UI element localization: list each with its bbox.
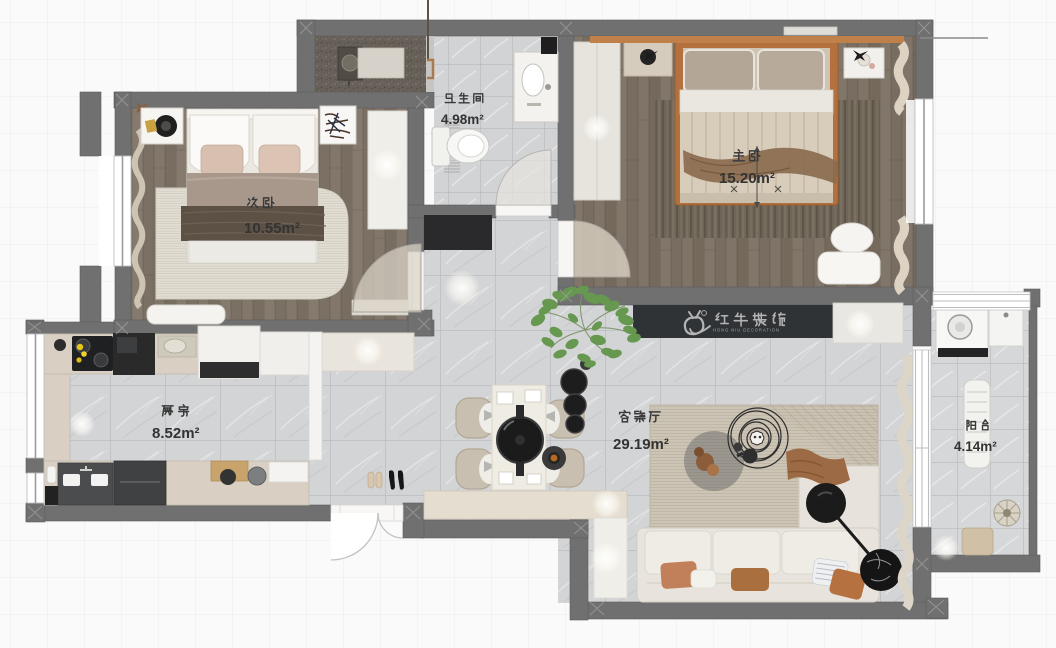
- svg-text:29.19m²: 29.19m²: [613, 436, 669, 453]
- svg-text:4.98m²: 4.98m²: [441, 112, 484, 127]
- svg-text:10.55m²: 10.55m²: [244, 220, 300, 237]
- svg-text:HONG NIU DECORATION: HONG NIU DECORATION: [713, 328, 780, 333]
- svg-text:15.20m²: 15.20m²: [719, 170, 775, 187]
- svg-text:4.14m²: 4.14m²: [954, 439, 997, 454]
- svg-text:8.52m²: 8.52m²: [152, 425, 200, 442]
